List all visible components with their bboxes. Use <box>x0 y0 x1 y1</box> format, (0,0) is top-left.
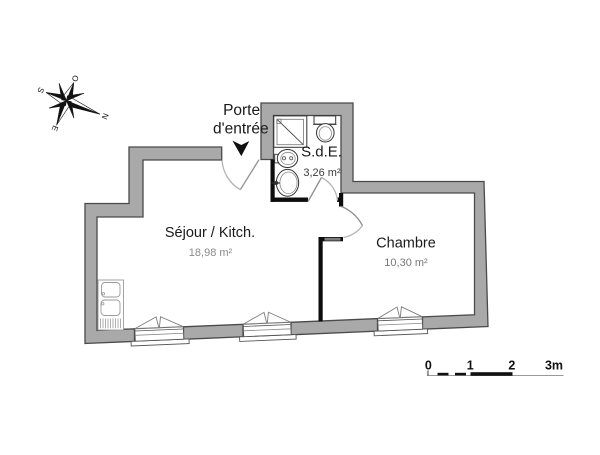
svg-text:S.d.E.: S.d.E. <box>301 144 342 161</box>
svg-text:18,98 m²: 18,98 m² <box>189 247 233 259</box>
svg-text:Séjour / Kitch.: Séjour / Kitch. <box>165 225 255 241</box>
svg-text:d'entrée: d'entrée <box>213 121 269 138</box>
svg-text:2: 2 <box>508 359 515 373</box>
svg-text:0: 0 <box>425 359 432 373</box>
svg-text:Porte: Porte <box>223 102 260 119</box>
svg-text:Chambre: Chambre <box>376 236 436 252</box>
svg-text:10,30 m²: 10,30 m² <box>384 257 428 269</box>
svg-text:3m: 3m <box>545 359 563 373</box>
svg-text:3,26 m²: 3,26 m² <box>303 167 341 179</box>
svg-text:1: 1 <box>467 359 474 373</box>
